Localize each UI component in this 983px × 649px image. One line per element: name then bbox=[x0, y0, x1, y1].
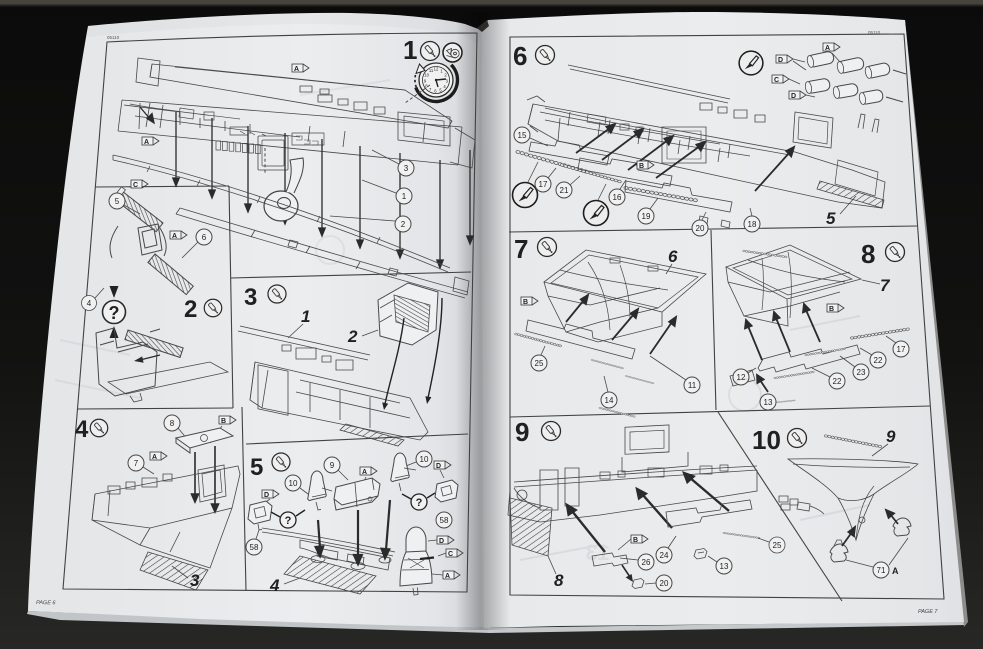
svg-text:58: 58 bbox=[440, 516, 449, 525]
svg-text:15: 15 bbox=[518, 131, 527, 140]
svg-text:C: C bbox=[448, 551, 453, 558]
svg-text:14: 14 bbox=[605, 396, 614, 405]
svg-text:D: D bbox=[439, 538, 444, 545]
svg-text:20: 20 bbox=[696, 224, 705, 233]
svg-text:6: 6 bbox=[513, 41, 527, 71]
svg-text:25: 25 bbox=[535, 359, 544, 368]
svg-text:25: 25 bbox=[773, 541, 782, 550]
svg-text:B: B bbox=[633, 537, 638, 544]
svg-text:3: 3 bbox=[244, 284, 257, 311]
svg-text:23: 23 bbox=[857, 368, 866, 377]
svg-text:22: 22 bbox=[874, 356, 883, 365]
svg-text:26: 26 bbox=[642, 558, 651, 567]
svg-text:A: A bbox=[892, 566, 899, 576]
svg-text:2: 2 bbox=[184, 296, 197, 323]
svg-text:4: 4 bbox=[269, 576, 280, 595]
svg-text:B: B bbox=[829, 306, 834, 313]
svg-text:17: 17 bbox=[539, 180, 548, 189]
svg-text:9: 9 bbox=[515, 417, 529, 447]
svg-text:B: B bbox=[221, 418, 226, 425]
svg-text:?: ? bbox=[285, 515, 292, 527]
svg-text:D: D bbox=[436, 463, 441, 470]
svg-text:D: D bbox=[264, 492, 269, 499]
svg-text:A: A bbox=[294, 66, 299, 73]
svg-text:20: 20 bbox=[660, 579, 669, 588]
svg-text:8: 8 bbox=[861, 239, 875, 269]
svg-text:D: D bbox=[791, 93, 796, 100]
svg-text:6: 6 bbox=[202, 233, 207, 242]
svg-text:1: 1 bbox=[301, 307, 310, 326]
svg-text:21: 21 bbox=[560, 186, 569, 195]
svg-text:05110: 05110 bbox=[107, 35, 120, 40]
svg-text:58: 58 bbox=[250, 543, 259, 552]
svg-text:9: 9 bbox=[886, 427, 896, 446]
svg-text:3: 3 bbox=[404, 164, 409, 173]
svg-text:A: A bbox=[144, 139, 149, 146]
svg-text:9: 9 bbox=[330, 461, 335, 470]
svg-text:?: ? bbox=[416, 497, 423, 509]
svg-text:?: ? bbox=[109, 303, 120, 323]
svg-text:5: 5 bbox=[250, 454, 263, 481]
svg-text:13: 13 bbox=[586, 540, 610, 565]
svg-text:13: 13 bbox=[720, 562, 729, 571]
svg-text:10: 10 bbox=[752, 425, 781, 455]
svg-text:B: B bbox=[639, 163, 644, 170]
svg-text:A: A bbox=[825, 45, 830, 52]
svg-text:05110: 05110 bbox=[868, 30, 881, 35]
svg-text:18: 18 bbox=[748, 220, 757, 229]
svg-text:7: 7 bbox=[134, 459, 139, 468]
svg-text:7: 7 bbox=[514, 234, 528, 264]
svg-text:71: 71 bbox=[877, 566, 886, 575]
svg-text:5: 5 bbox=[115, 197, 120, 206]
svg-text:B: B bbox=[523, 299, 528, 306]
svg-text:7: 7 bbox=[880, 276, 891, 295]
svg-text:10: 10 bbox=[424, 73, 429, 78]
svg-text:C: C bbox=[133, 182, 138, 189]
svg-text:1: 1 bbox=[402, 192, 407, 201]
svg-text:24: 24 bbox=[660, 551, 669, 560]
svg-text:11: 11 bbox=[429, 68, 434, 73]
svg-text:A: A bbox=[445, 573, 450, 580]
svg-text:8: 8 bbox=[170, 419, 175, 428]
svg-text:10: 10 bbox=[289, 479, 298, 488]
svg-text:A: A bbox=[152, 454, 157, 461]
svg-text:5: 5 bbox=[826, 209, 836, 228]
svg-text:17: 17 bbox=[897, 345, 906, 354]
svg-text:6: 6 bbox=[668, 247, 678, 266]
svg-text:PAGE 7: PAGE 7 bbox=[918, 609, 938, 615]
svg-text:A: A bbox=[362, 469, 367, 476]
svg-text:D: D bbox=[778, 57, 783, 64]
svg-text:A: A bbox=[172, 233, 177, 240]
svg-text:2: 2 bbox=[347, 327, 358, 346]
svg-text:4: 4 bbox=[75, 416, 89, 443]
svg-text:11: 11 bbox=[688, 381, 697, 390]
svg-text:4: 4 bbox=[87, 299, 92, 308]
svg-text:C: C bbox=[774, 77, 779, 84]
svg-text:19: 19 bbox=[642, 212, 651, 221]
svg-text:PAGE 6: PAGE 6 bbox=[36, 600, 57, 606]
svg-text:22: 22 bbox=[833, 377, 842, 386]
svg-text:12: 12 bbox=[434, 67, 439, 72]
svg-text:1: 1 bbox=[403, 35, 417, 65]
svg-text:3: 3 bbox=[190, 571, 200, 590]
svg-text:10: 10 bbox=[420, 455, 429, 464]
svg-text:13: 13 bbox=[764, 398, 773, 407]
svg-text:16: 16 bbox=[613, 193, 622, 202]
svg-text:2: 2 bbox=[401, 220, 406, 229]
